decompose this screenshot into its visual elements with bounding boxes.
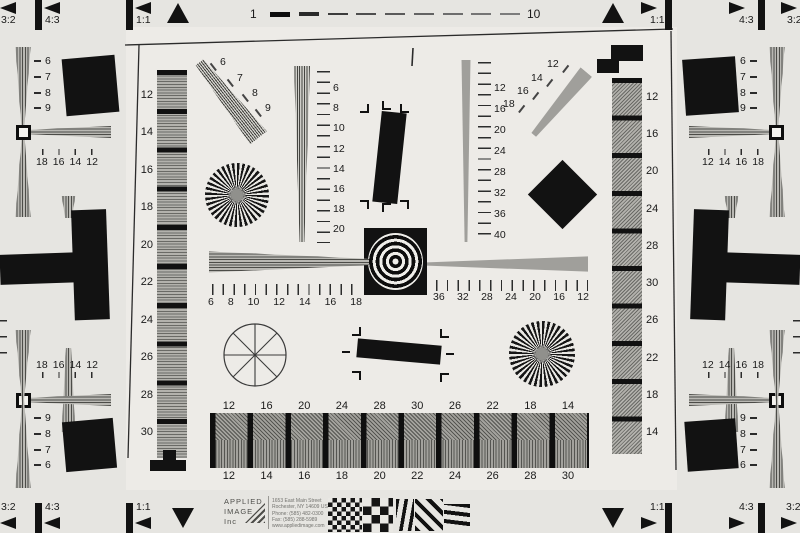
ruler-label: 20	[529, 292, 541, 303]
scale-label: 6	[34, 56, 51, 67]
aspect-arrow-icon	[729, 517, 745, 529]
ruler-label: 12	[577, 292, 589, 303]
frequency-label: 22	[646, 353, 668, 364]
ruler-label: 36	[433, 292, 445, 303]
fiducial-mark	[360, 200, 369, 209]
scale-label: 9	[34, 103, 51, 114]
frequency-label: 16	[141, 165, 153, 176]
scale-label: 12	[86, 360, 98, 371]
aspect-label-43: 4:3	[739, 15, 754, 26]
registration-triangle-icon	[602, 3, 624, 23]
black-square-patch	[684, 418, 738, 471]
horizontal-ruler-ticks	[212, 284, 362, 295]
edge-tick-row	[42, 149, 94, 155]
scale-label: 14	[70, 157, 82, 168]
fan-label: 14	[531, 73, 543, 84]
checkerboard-coarse	[363, 498, 393, 532]
t-arm	[721, 252, 800, 285]
address-line: Rochester, NY 14609 USA	[272, 504, 331, 510]
frequency-label: 24	[141, 315, 153, 326]
vertical-ruler-ticks	[317, 71, 330, 243]
dash-mark	[356, 13, 376, 15]
aspect-label-32: 3:2	[786, 502, 800, 513]
block-strip-bottom-labels: 12141618202224262830	[210, 471, 587, 482]
ruler-label: 28	[481, 292, 493, 303]
fiducial-mark	[342, 351, 350, 353]
frequency-label: 30	[646, 278, 668, 289]
edge-scale-right-top-horiz: 12141618	[702, 157, 764, 168]
frequency-label: 22	[141, 277, 153, 288]
fan-label: 6	[220, 57, 226, 68]
edge-tick-row	[42, 372, 94, 378]
fiducial-mark	[440, 329, 449, 338]
horizontal-ruler-ticks	[436, 280, 588, 291]
cross-center-marker	[769, 125, 784, 140]
fan-label: 7	[237, 73, 243, 84]
top-dash-scale: 1 10	[250, 7, 542, 23]
aspect-label-11: 1:1	[650, 15, 665, 26]
edge-scale-left-bottom-horiz: 18161412	[36, 360, 98, 371]
aspect-label-11: 1:1	[136, 15, 151, 26]
star-center	[229, 187, 244, 202]
iso-resolution-test-chart: 1 10 3:2 4:3 1:1 1:1 4:3 3:2 3:2 4:3 1:1	[0, 0, 800, 533]
cross-center-marker	[16, 125, 31, 140]
edge-scale-left-top: 6789	[34, 56, 51, 114]
ruler-label: 32	[457, 292, 469, 303]
aspect-arrow-icon	[135, 2, 151, 14]
aspect-bar	[665, 503, 672, 533]
frequency-label: 14	[646, 427, 668, 438]
fan-ruler-top-right: 12141618	[500, 59, 572, 115]
zone-plate-target	[364, 228, 427, 295]
ruler-label: 20	[333, 224, 345, 235]
scale-label: 18	[752, 157, 764, 168]
scale-label: 8	[740, 429, 757, 440]
aspect-label-32: 3:2	[787, 15, 800, 26]
scale-label: 14	[719, 157, 731, 168]
frequency-label: 22	[487, 401, 499, 412]
aspect-arrow-icon	[44, 2, 60, 14]
scale-label: 6	[34, 460, 51, 471]
dash-mark	[270, 12, 290, 17]
fan-label: 8	[252, 88, 258, 99]
edge-tick-column	[793, 320, 800, 368]
aspect-arrow-icon	[781, 517, 797, 529]
scale-label: 8	[34, 429, 51, 440]
address-line: Phone: (585) 482-0300	[272, 511, 331, 517]
black-square-patch	[682, 56, 739, 116]
fan-ruler-top-left: 6789	[186, 57, 278, 115]
aspect-label-11: 1:1	[136, 502, 151, 513]
scale-label: 16	[53, 157, 65, 168]
fiducial-mark	[382, 203, 391, 212]
frequency-label: 14	[141, 127, 153, 138]
frequency-label: 26	[487, 471, 499, 482]
aspect-bar	[126, 0, 133, 30]
dash-mark	[414, 13, 434, 15]
aspect-arrow-icon	[641, 2, 657, 14]
aspect-label-43: 4:3	[739, 502, 754, 513]
horizontal-ruler-right-labels: 36322824201612	[433, 292, 589, 303]
frequency-label: 20	[141, 240, 153, 251]
frequency-label: 28	[373, 401, 385, 412]
frequency-label: 18	[336, 471, 348, 482]
brand-line: APPLIED	[224, 497, 263, 507]
edge-scale-left-bottom: 9876	[34, 413, 51, 471]
frequency-label: 18	[141, 202, 153, 213]
registration-triangle-icon	[167, 3, 189, 23]
aspect-arrow-icon	[781, 2, 797, 14]
ruler-label: 28	[494, 167, 506, 178]
frequency-label: 16	[646, 129, 668, 140]
scale-label: 9	[34, 413, 51, 424]
aspect-label-11: 1:1	[650, 502, 665, 513]
top-mark-stub	[597, 59, 619, 73]
scale-label: 18	[752, 360, 764, 371]
edge-scale-right-bottom: 9876	[740, 413, 757, 471]
black-square-patch	[62, 55, 120, 116]
frequency-label: 12	[223, 401, 235, 412]
frequency-label: 18	[524, 401, 536, 412]
vertical-ruler-ticks	[478, 62, 491, 242]
fiducial-mark	[440, 373, 449, 382]
ruler-label: 16	[333, 184, 345, 195]
aspect-bar	[758, 503, 765, 533]
scale-label: 12	[702, 360, 714, 371]
frequency-label: 22	[411, 471, 423, 482]
aspect-arrow-icon	[0, 2, 16, 14]
scale-label: 6	[740, 56, 757, 67]
aspect-bar	[35, 503, 42, 533]
aspect-arrow-icon	[641, 517, 657, 529]
frequency-label: 26	[141, 352, 153, 363]
scale-label: 14	[70, 360, 82, 371]
fiducial-mark	[352, 327, 361, 336]
frequency-label: 28	[524, 471, 536, 482]
ruler-label: 12	[333, 144, 345, 155]
aspect-bar	[35, 0, 42, 30]
ruler-label: 10	[248, 297, 260, 308]
scale-label: 18	[36, 360, 48, 371]
edge-tick-column	[0, 320, 7, 368]
edge-scale-right-top: 6789	[740, 56, 757, 114]
aspect-arrow-icon	[729, 2, 745, 14]
ruler-label: 32	[494, 188, 506, 199]
frequency-label: 16	[298, 471, 310, 482]
horizontal-bars-patch	[444, 504, 470, 528]
frequency-label: 12	[141, 90, 153, 101]
block-strip-top-labels: 12162024283026221814	[210, 401, 587, 412]
big-t-mark-right	[688, 209, 800, 325]
ruler-label: 6	[208, 297, 214, 308]
ruler-label: 14	[333, 164, 345, 175]
registration-triangle-icon	[172, 508, 194, 528]
ruler-label: 8	[228, 297, 234, 308]
aspect-label-32: 3:2	[1, 502, 16, 513]
siemens-star-lower	[509, 321, 575, 387]
ruler-label: 40	[494, 230, 506, 241]
fiducial-mark	[446, 353, 454, 355]
ruler-label: 18	[350, 297, 362, 308]
siemens-star-upper	[205, 163, 269, 227]
frequency-label: 18	[646, 390, 668, 401]
sweep-column-left	[157, 70, 187, 458]
frequency-label: 14	[260, 471, 272, 482]
tilted-black-bar	[356, 338, 441, 364]
edge-scale-left-top-horiz: 18161412	[36, 157, 98, 168]
edge-scale-right-bottom-horiz: 12141618	[702, 360, 764, 371]
dash-mark	[328, 13, 348, 16]
dash-mark	[385, 13, 405, 15]
aspect-label-32: 3:2	[1, 15, 16, 26]
scale-label: 14	[719, 360, 731, 371]
star-center	[534, 346, 550, 362]
frequency-label: 30	[141, 427, 153, 438]
scale-label: 7	[740, 445, 757, 456]
frequency-label: 26	[646, 315, 668, 326]
scale-label: 12	[702, 157, 714, 168]
zone-plate-rings	[368, 233, 423, 290]
spoked-circle-target	[221, 321, 289, 389]
frequency-label: 24	[449, 471, 461, 482]
aspect-label-43: 4:3	[45, 15, 60, 26]
edge-tick-row	[708, 372, 760, 378]
sweep-column-left-labels: 12141618202224262830	[133, 90, 153, 438]
ruler-label: 36	[494, 209, 506, 220]
aspect-arrow-icon	[135, 517, 151, 529]
end-mark-stub	[163, 450, 176, 462]
frequency-label: 20	[298, 401, 310, 412]
fan-label: 12	[547, 59, 559, 70]
sweep-column-right-labels: 12162024283026221814	[646, 92, 668, 438]
scale-label: 16	[736, 360, 748, 371]
scale-label: 8	[740, 88, 757, 99]
dash-mark	[471, 13, 491, 15]
frequency-label: 12	[646, 92, 668, 103]
top-scale-start: 1	[250, 8, 257, 20]
aspect-bar	[126, 503, 133, 533]
big-t-mark-left	[0, 209, 112, 325]
column-end-mark	[150, 450, 188, 474]
frequency-label: 30	[562, 471, 574, 482]
frequency-label: 24	[646, 204, 668, 215]
scale-label: 7	[34, 72, 51, 83]
checkerboard-fine	[328, 498, 362, 532]
fan-label: 16	[517, 86, 529, 97]
vertical-bars-patch	[396, 499, 414, 531]
edge-tick-row	[708, 149, 760, 155]
frequency-label: 12	[223, 471, 235, 482]
frequency-label: 28	[646, 241, 668, 252]
frequency-label: 28	[141, 390, 153, 401]
fiducial-mark	[352, 371, 361, 380]
ruler-label: 16	[553, 292, 565, 303]
fan-label: 9	[265, 103, 271, 114]
address-line: www.appliedimage.com	[272, 523, 331, 529]
fiducial-mark	[400, 104, 409, 113]
aspect-arrow-icon	[44, 517, 60, 529]
scale-label: 7	[34, 445, 51, 456]
dash-mark	[443, 13, 463, 15]
strip-separators	[210, 413, 589, 468]
ruler-label: 24	[494, 146, 506, 157]
vertical-ruler-left-labels: 68101214161820	[333, 83, 345, 235]
dash-row	[270, 7, 520, 21]
aspect-bar	[665, 0, 672, 30]
scale-label: 9	[740, 413, 757, 424]
dash-mark	[500, 13, 520, 15]
ruler-label: 8	[333, 103, 345, 114]
fiducial-mark	[360, 104, 369, 113]
ruler-label: 14	[299, 297, 311, 308]
scale-label: 6	[740, 460, 757, 471]
t-arm	[0, 252, 79, 285]
tilted-bar-target-horizontal	[342, 325, 454, 381]
resolution-block-strip	[210, 413, 589, 468]
fan-label: 18	[503, 99, 515, 110]
scale-label: 18	[36, 157, 48, 168]
fiducial-mark	[400, 200, 409, 209]
address-block: 1653 East Main StreetRochester, NY 14609…	[272, 498, 331, 529]
scale-label: 12	[86, 157, 98, 168]
ruler-label: 6	[333, 83, 345, 94]
frequency-label: 14	[562, 401, 574, 412]
horizontal-ruler-left-labels: 681012141618	[208, 297, 362, 308]
aspect-label-43: 4:3	[45, 502, 60, 513]
frequency-label: 20	[646, 166, 668, 177]
ruler-label: 10	[333, 123, 345, 134]
dash-mark	[299, 12, 319, 16]
black-square-patch	[62, 418, 117, 472]
tilted-black-bar	[372, 111, 406, 204]
ruler-label: 18	[333, 204, 345, 215]
aspect-arrow-icon	[0, 517, 16, 529]
scale-label: 9	[740, 103, 757, 114]
registration-triangle-icon	[602, 508, 624, 528]
scale-label: 16	[736, 157, 748, 168]
scale-label: 16	[53, 360, 65, 371]
ruler-label: 20	[494, 125, 506, 136]
frequency-label: 26	[449, 401, 461, 412]
diagonal-bars-patch	[415, 499, 443, 531]
scale-label: 8	[34, 88, 51, 99]
frequency-label: 16	[260, 401, 272, 412]
fiducial-mark	[382, 101, 391, 110]
ruler-label: 24	[505, 292, 517, 303]
aspect-bar	[758, 0, 765, 30]
frequency-label: 24	[336, 401, 348, 412]
scale-label: 7	[740, 72, 757, 83]
sweep-column-right	[612, 78, 642, 454]
frequency-label: 30	[411, 401, 423, 412]
ruler-label: 16	[325, 297, 337, 308]
top-scale-end: 10	[527, 8, 540, 20]
frequency-label: 20	[373, 471, 385, 482]
footer-divider	[268, 496, 269, 529]
tilted-bar-target-vertical	[356, 100, 408, 212]
t-stem	[71, 209, 110, 320]
column-top-mark	[597, 45, 643, 77]
ruler-label: 12	[273, 297, 285, 308]
